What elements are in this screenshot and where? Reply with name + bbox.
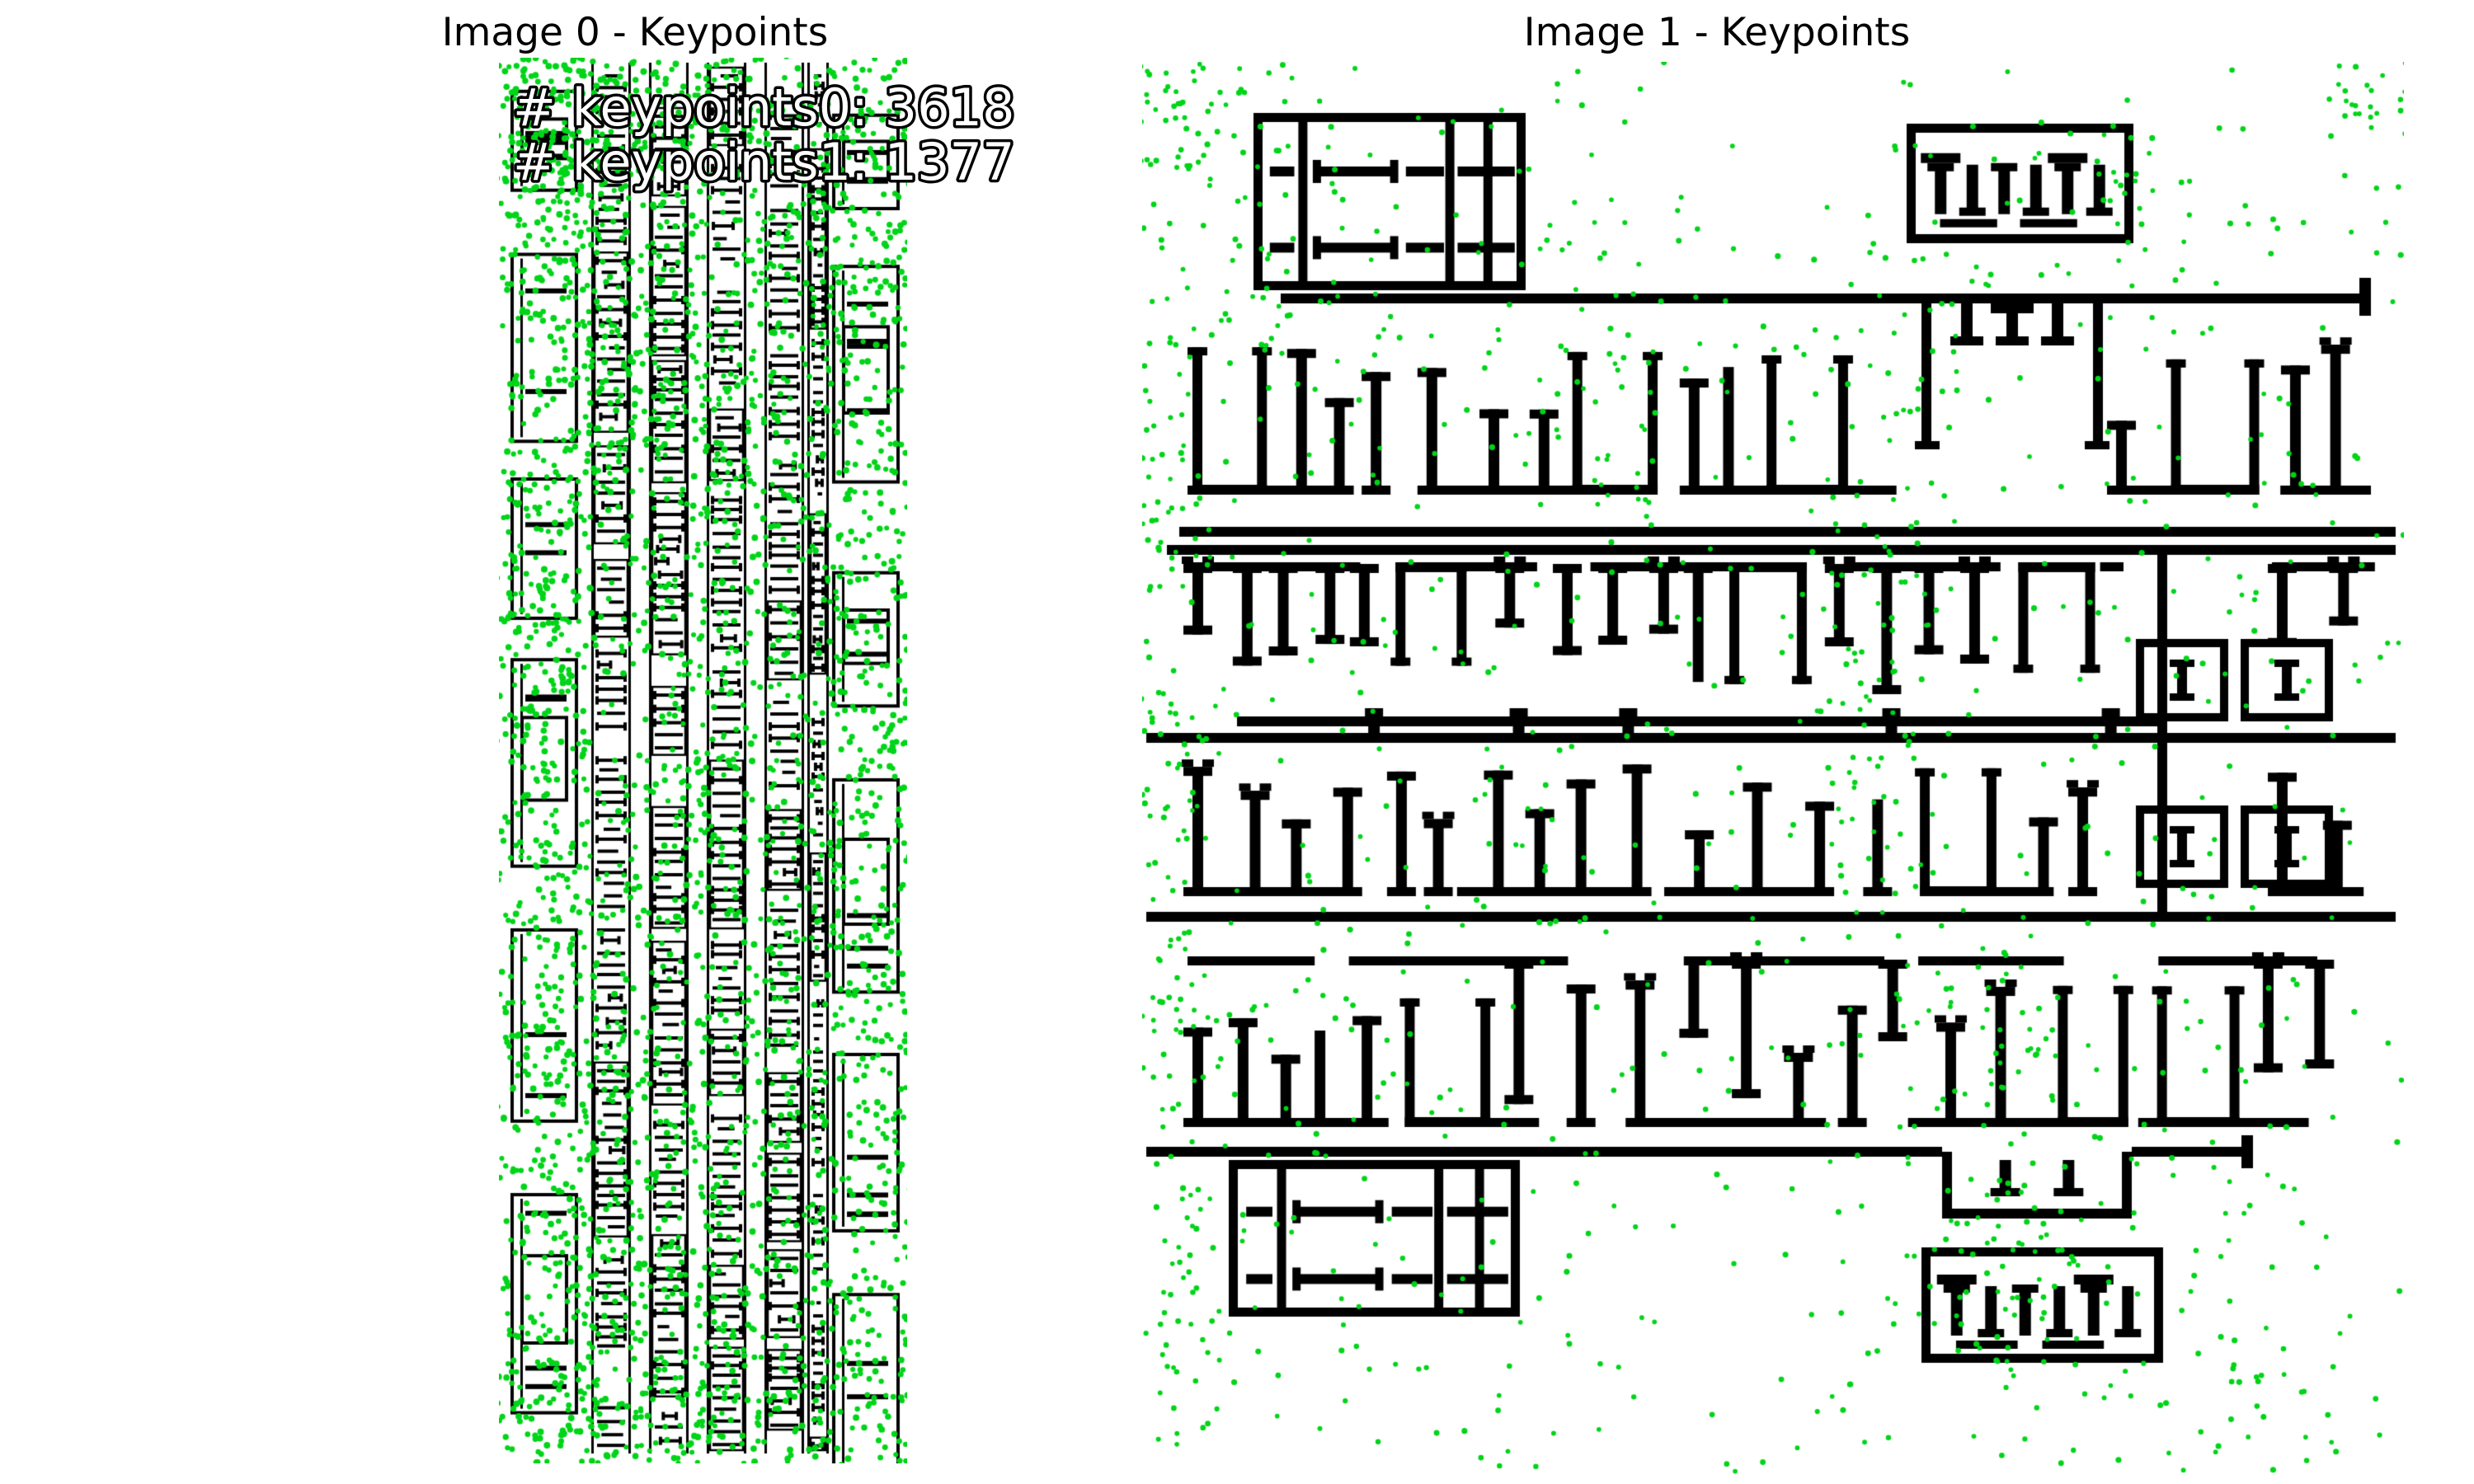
image0-keypoints-canvas xyxy=(499,58,907,1463)
figure-root: Image 0 - Keypoints Image 1 - Keypoints … xyxy=(0,0,2474,1484)
panel0-title: Image 0 - Keypoints xyxy=(442,13,828,52)
panel1-title: Image 1 - Keypoints xyxy=(1524,13,1910,52)
image1-keypoints-canvas xyxy=(1142,62,2404,1476)
